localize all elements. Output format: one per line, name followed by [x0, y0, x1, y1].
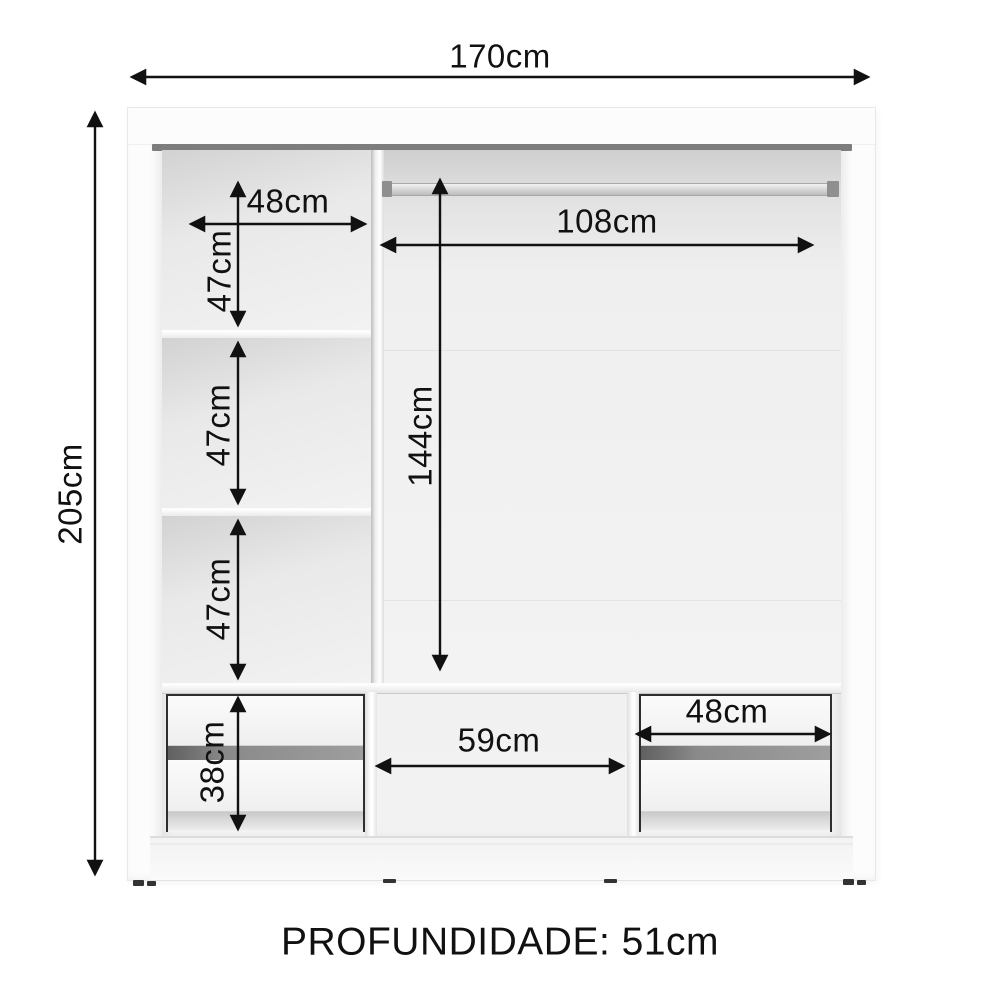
drawer-front-bottom — [641, 760, 830, 812]
total-width-label: 170cm — [449, 40, 551, 73]
hanging-rod — [384, 183, 837, 196]
shelf-height-bottom-label: 47cm — [202, 558, 235, 641]
drawer-width-label: 48cm — [686, 695, 769, 728]
cabinet-foot — [147, 881, 156, 886]
drawer-height-label: 38cm — [196, 721, 229, 804]
back-panel-seam — [384, 350, 841, 351]
cabinet-foot — [383, 879, 396, 883]
center-compartment-left-wall — [365, 692, 377, 836]
rod-width-label: 108cm — [556, 205, 658, 238]
left-compartment-middle — [162, 338, 372, 508]
rod-bracket-right — [827, 181, 839, 197]
hanging-height-label: 144cm — [404, 385, 437, 487]
shelf-height-top-label: 47cm — [203, 230, 236, 313]
left-compartment-bottom — [162, 516, 372, 683]
shelf-width-label: 48cm — [247, 185, 330, 218]
drawer-under-shadow — [168, 812, 363, 830]
base-seam — [150, 843, 853, 845]
rod-bracket-left — [382, 181, 392, 197]
cabinet-right-wall — [840, 108, 875, 880]
cabinet-foot — [604, 879, 617, 883]
vertical-divider-panel — [371, 150, 384, 683]
shelf-height-middle-label: 47cm — [202, 384, 235, 467]
center-compartment-right-wall — [627, 692, 639, 836]
depth-caption: PROFUNDIDADE: 51cm — [281, 923, 719, 962]
cabinet-foot — [133, 880, 144, 886]
cabinet-top-frame — [128, 108, 875, 145]
cabinet-base-plinth — [150, 836, 853, 881]
wardrobe-cabinet — [128, 108, 875, 880]
back-panel-seam — [384, 600, 841, 601]
cabinet-foot — [843, 879, 854, 885]
left-compartment-top — [162, 150, 372, 330]
total-height-label: 205cm — [54, 443, 87, 545]
drawer-under-shadow — [641, 812, 830, 830]
center-width-label: 59cm — [458, 724, 541, 757]
drawer-gap — [641, 746, 830, 760]
cabinet-left-wall — [128, 108, 163, 880]
cabinet-foot — [857, 880, 866, 885]
wardrobe-dimension-diagram: 170cm 205cm 48cm 47cm 47cm 47cm 108cm 14… — [0, 0, 1000, 1000]
